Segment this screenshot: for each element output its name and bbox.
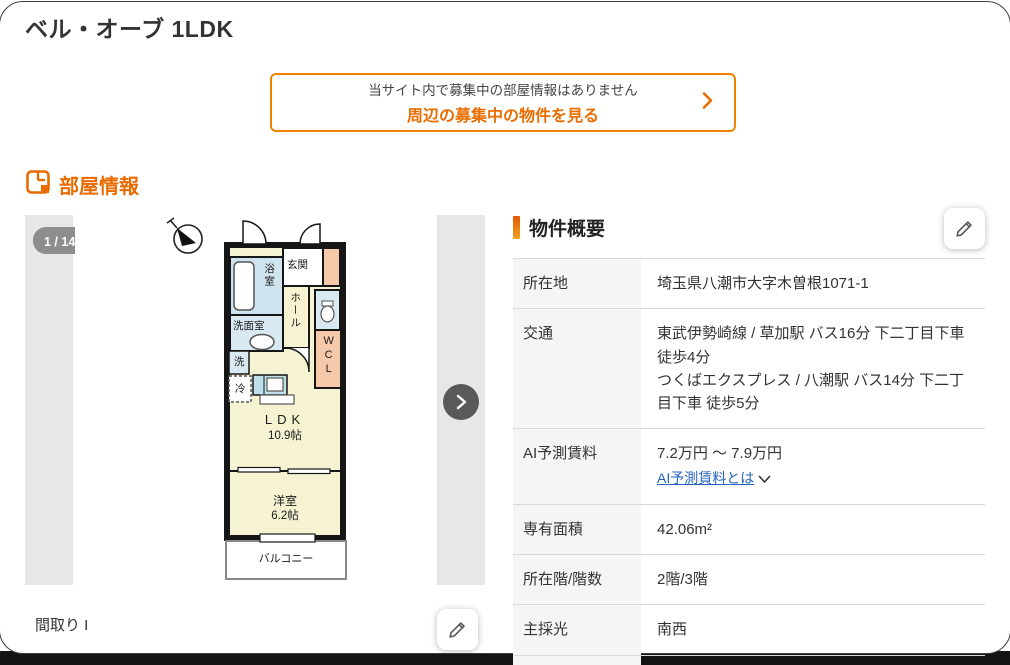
floorplan-label-hall: ホール [289,292,301,330]
floorplan-icon [25,169,51,200]
transport-line-1: 東武伊勢崎線 / 草加駅 バス16分 下二丁目下車 徒歩4分 [657,322,969,369]
table-row-ai-rent: AI予測賃料 7.2万円 〜 7.9万円 AI予測賃料とは [513,428,985,504]
floorplan-label-ldk-size: 10.9帖 [230,430,340,443]
floorplan-image[interactable]: 浴室 玄関 ホール 洗面室 洗 冷 WCL LDK 10.9帖 洋室 6.2帖 … [75,215,437,585]
nearby-properties-link[interactable]: 周辺の募集中の物件を見る [407,102,599,126]
notice-message: 当サイト内で募集中の部屋情報はありません [368,79,638,99]
floorplan-label-fridge: 冷 [235,383,246,395]
row-value: 南西 [641,605,985,654]
row-value: 7.2万円 〜 7.9万円 AI予測賃料とは [641,429,985,504]
floorplan-svg [75,215,437,585]
no-vacancy-notice[interactable]: 当サイト内で募集中の部屋情報はありません 周辺の募集中の物件を見る [270,73,736,132]
property-overview-table: 所在地 埼玉県八潮市大字木曽根1071-1 交通 東武伊勢崎線 / 草加駅 バス… [513,258,985,665]
row-label: 所在地 [513,259,641,308]
row-value: 東武伊勢崎線 / 草加駅 バス16分 下二丁目下車 徒歩4分 つくばエクスプレス… [641,309,985,428]
table-row-transport: 交通 東武伊勢崎線 / 草加駅 バス16分 下二丁目下車 徒歩4分 つくばエクス… [513,308,985,428]
table-row-layout: 間取り 1LDK （リビングダイニングキッチン10.8帖 洋室6.1帖） [513,655,985,665]
floorplan-label-wcl: WCL [322,335,335,377]
table-row-address: 所在地 埼玉県八潮市大字木曽根1071-1 [513,258,985,308]
gallery-left-gutter [25,215,73,585]
floorplan-label-ldk: LDK [230,413,340,428]
pencil-icon [447,619,468,640]
row-label: 主採光 [513,605,641,654]
page-title: ベル・オーブ 1LDK [25,10,234,44]
photo-caption: 間取り I [35,614,88,635]
room-info-title: 部屋情報 [59,170,139,199]
row-value: 42.06m² [641,505,985,554]
row-label: 専有面積 [513,505,641,554]
edit-floorplan-button[interactable] [437,609,478,650]
edit-overview-button[interactable] [944,208,985,249]
next-photo-button[interactable] [443,384,479,420]
row-value: 埼玉県八潮市大字木曽根1071-1 [641,259,985,308]
table-row-area: 専有面積 42.06m² [513,504,985,554]
row-label: 所在階/階数 [513,555,641,604]
page: ベル・オーブ 1LDK 当サイト内で募集中の部屋情報はありません 周辺の募集中の… [0,0,1010,665]
pencil-icon [954,218,975,239]
accent-bar [513,216,520,239]
chevron-down-icon[interactable] [758,468,771,491]
room-info-section-header: 部屋情報 [25,169,139,200]
floorplan-label-washer: 洗 [234,356,245,368]
ai-rent-info-link[interactable]: AI予測賃料とは [657,468,754,490]
floorplan-label-genkan: 玄関 [287,259,308,271]
ai-rent-value: 7.2万円 〜 7.9万円 [657,442,969,465]
floorplan-label-bedroom-size: 6.2帖 [230,510,340,523]
row-value: 1LDK （リビングダイニングキッチン10.8帖 洋室6.1帖） [641,656,985,665]
floorplan-label-washroom: 洗面室 [233,320,265,332]
chevron-right-icon [701,90,714,115]
table-row-facing: 主採光 南西 [513,604,985,654]
floorplan-label-bath: 浴室 [263,263,275,288]
row-label: 間取り [513,656,641,665]
floorplan-label-balcony: バルコニー [226,553,346,566]
overview-title: 物件概要 [529,214,605,241]
row-label: AI予測賃料 [513,429,641,504]
transport-line-2: つくばエクスプレス / 八潮駅 バス14分 下二丁目下車 徒歩5分 [657,369,969,416]
row-value: 2階/3階 [641,555,985,604]
row-label: 交通 [513,309,641,428]
floorplan-label-bedroom: 洋室 [230,495,340,509]
table-row-floor: 所在階/階数 2階/3階 [513,554,985,604]
overview-section-header: 物件概要 [513,214,605,241]
